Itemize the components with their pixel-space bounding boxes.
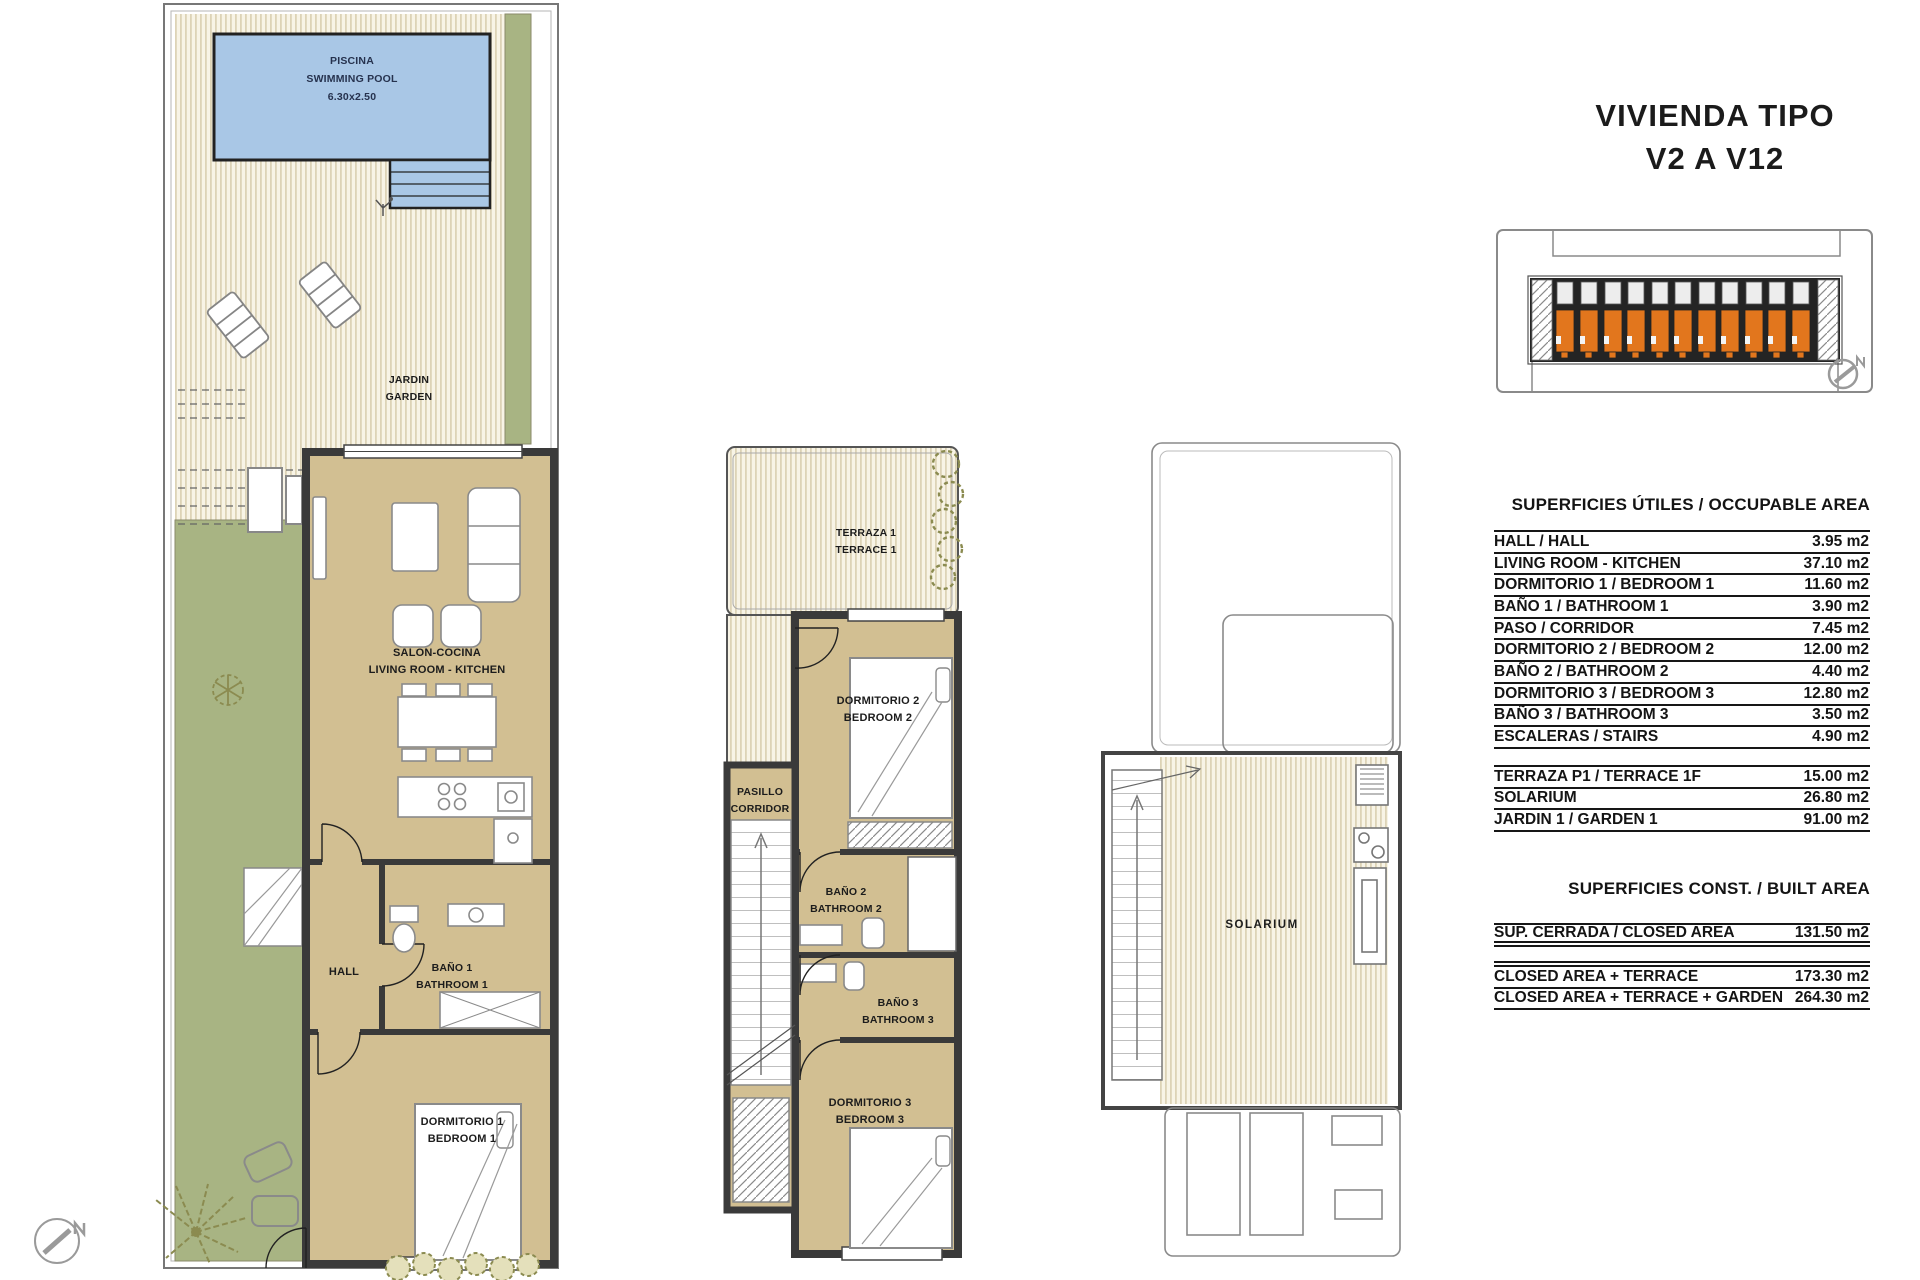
row-value: 12.80 m2 (1804, 685, 1871, 703)
bedroom3-label-es: DORMITORIO 3 (829, 1097, 912, 1109)
row-label: LIVING ROOM - KITCHEN (1494, 555, 1681, 573)
pool-label-es: PISCINA (330, 55, 374, 67)
row-value: 7.45 m2 (1812, 620, 1870, 638)
exterior-area-table: TERRAZA P1 / TERRACE 1F15.00 m2 SOLARIUM… (1494, 765, 1870, 832)
toilet (844, 962, 864, 990)
garden-label-en: GARDEN (386, 391, 433, 403)
armchair (441, 605, 481, 647)
table-row: ESCALERAS / STAIRS4.90 m2 (1494, 727, 1870, 749)
sheet-title: VIVIENDA TIPO V2 A V12 (1553, 94, 1877, 180)
occupable-area-table: HALL / HALL3.95 m2 LIVING ROOM - KITCHEN… (1494, 530, 1870, 749)
totals-table: CLOSED AREA + TERRACE173.30 m2 CLOSED AR… (1494, 961, 1870, 1010)
terrace-label-en: TERRACE 1 (835, 544, 896, 556)
sheet-title-line1: VIVIENDA TIPO (1553, 94, 1877, 137)
patio-table (286, 476, 302, 524)
bedroom2-label-en: BEDROOM 2 (844, 712, 912, 724)
bed (850, 658, 952, 818)
coffee-table (392, 503, 438, 571)
floorplan-sheet: PISCINA SWIMMING POOL 6.30x2.50 JARDIN G… (0, 0, 1920, 1280)
toilet (393, 924, 415, 952)
pool-dimensions: 6.30x2.50 (328, 91, 377, 103)
table-row: TERRAZA P1 / TERRACE 1F15.00 m2 (1494, 767, 1870, 789)
living-label-en: LIVING ROOM - KITCHEN (369, 664, 506, 676)
shower (908, 857, 956, 951)
sofa (468, 488, 520, 602)
row-label: CLOSED AREA + TERRACE + GARDEN (1494, 989, 1783, 1007)
table-row: BAÑO 1 / BATHROOM 13.90 m2 (1494, 597, 1870, 619)
washbasin (800, 964, 836, 982)
area-tables: SUPERFICIES ÚTILES / OCCUPABLE AREA HALL… (1494, 495, 1870, 1010)
bed (850, 1128, 952, 1248)
kitchen-unit (494, 819, 532, 863)
row-label: DORMITORIO 1 / BEDROOM 1 (1494, 576, 1714, 594)
row-value: 15.00 m2 (1804, 768, 1871, 786)
garden-label-es: JARDIN (389, 374, 429, 386)
bedroom3-label-en: BEDROOM 3 (836, 1114, 904, 1126)
dining-table (398, 697, 496, 747)
bedroom1-label-es: DORMITORIO 1 (421, 1116, 504, 1128)
row-value: 173.30 m2 (1795, 968, 1870, 986)
chair (436, 749, 460, 761)
row-value: 26.80 m2 (1804, 789, 1871, 807)
row-value: 4.90 m2 (1812, 728, 1870, 746)
bbq-unit (1356, 765, 1388, 805)
bath2-label-en: BATHROOM 2 (810, 903, 882, 915)
armchair (393, 605, 433, 647)
living-label-es: SALON-COCINA (393, 647, 481, 659)
staircase (727, 820, 795, 1085)
ground-floor-plan: PISCINA SWIMMING POOL 6.30x2.50 JARDIN G… (156, 4, 558, 1280)
bath3-label-en: BATHROOM 3 (862, 1014, 934, 1026)
corridor-label-en: CORRIDOR (731, 803, 790, 815)
row-value: 3.90 m2 (1812, 598, 1870, 616)
solarium-plan: SOLARIUM (1103, 443, 1400, 1256)
patio-table (248, 468, 282, 532)
table-row: DORMITORIO 2 / BEDROOM 212.00 m2 (1494, 640, 1870, 662)
pool-label-en: SWIMMING POOL (306, 73, 398, 85)
table-row: PASO / CORRIDOR7.45 m2 (1494, 619, 1870, 641)
row-value: 11.60 m2 (1804, 576, 1870, 594)
chair (402, 749, 426, 761)
row-value: 3.95 m2 (1812, 533, 1870, 551)
bath3-label-es: BAÑO 3 (878, 996, 919, 1009)
roof-outline (1165, 1108, 1400, 1256)
table-row: BAÑO 3 / BATHROOM 33.50 m2 (1494, 706, 1870, 728)
terrace-label-es: TERRAZA 1 (836, 527, 896, 539)
row-value: 131.50 m2 (1795, 924, 1870, 942)
table-row: CLOSED AREA + TERRACE + GARDEN264.30 m2 (1494, 989, 1870, 1011)
row-label: BAÑO 3 / BATHROOM 3 (1494, 706, 1669, 724)
terrace-outline (1223, 615, 1393, 753)
table-row: CLOSED AREA + TERRACE173.30 m2 (1494, 967, 1870, 989)
bedroom1-label-en: BEDROOM 1 (428, 1133, 496, 1145)
row-label: JARDIN 1 / GARDEN 1 (1494, 811, 1658, 829)
north-compass-icon (35, 1219, 84, 1263)
table-row: JARDIN 1 / GARDEN 191.00 m2 (1494, 810, 1870, 832)
row-value: 37.10 m2 (1804, 555, 1871, 573)
table-row: SOLARIUM26.80 m2 (1494, 789, 1870, 811)
chair (436, 684, 460, 696)
highlighted-units (1556, 282, 1810, 358)
built-area-heading: SUPERFICIES CONST. / BUILT AREA (1494, 879, 1870, 899)
north-compass-icon (1829, 357, 1864, 388)
row-label: CLOSED AREA + TERRACE (1494, 968, 1698, 986)
first-floor-plan: TERRAZA 1 TERRACE 1 PASILLO CORRIDOR DOR… (727, 447, 963, 1260)
table-row: HALL / HALL3.95 m2 (1494, 532, 1870, 554)
garden-hedge-strip (505, 14, 531, 444)
built-area-table: SUP. CERRADA / CLOSED AREA131.50 m2 (1494, 923, 1870, 947)
toilet-cistern (390, 906, 418, 922)
bath2-label-es: BAÑO 2 (826, 885, 867, 898)
kitchen-sink (498, 783, 524, 811)
tall-unit (1354, 868, 1386, 964)
table-row: BAÑO 2 / BATHROOM 24.40 m2 (1494, 662, 1870, 684)
occupable-area-heading: SUPERFICIES ÚTILES / OCCUPABLE AREA (1494, 495, 1870, 515)
wardrobe (848, 822, 952, 848)
branch-icon-dot (389, 197, 393, 201)
washbasin (800, 925, 842, 945)
table-row: LIVING ROOM - KITCHEN37.10 m2 (1494, 554, 1870, 576)
lower-floor-outline (1152, 443, 1400, 753)
row-value: 3.50 m2 (1812, 706, 1870, 724)
toilet (862, 918, 884, 948)
bedroom2-label-es: DORMITORIO 2 (837, 695, 920, 707)
row-value: 264.30 m2 (1795, 989, 1870, 1007)
row-value: 12.00 m2 (1804, 641, 1871, 659)
side-stair (244, 868, 302, 946)
chair (468, 684, 492, 696)
row-label: TERRAZA P1 / TERRACE 1F (1494, 768, 1701, 786)
table-row: SUP. CERRADA / CLOSED AREA131.50 m2 (1494, 923, 1870, 947)
row-label: SOLARIUM (1494, 789, 1577, 807)
row-label: BAÑO 2 / BATHROOM 2 (1494, 663, 1669, 681)
wardrobe (733, 1098, 789, 1202)
row-label: ESCALERAS / STAIRS (1494, 728, 1658, 746)
hall-label: HALL (329, 966, 359, 978)
bath1-label-en: BATHROOM 1 (416, 979, 488, 991)
row-label: HALL / HALL (1494, 533, 1589, 551)
row-value: 91.00 m2 (1804, 811, 1871, 829)
site-key-plan (1497, 230, 1872, 392)
row-label: PASO / CORRIDOR (1494, 620, 1634, 638)
table-row: DORMITORIO 3 / BEDROOM 312.80 m2 (1494, 684, 1870, 706)
row-label: BAÑO 1 / BATHROOM 1 (1494, 598, 1669, 616)
table-row: DORMITORIO 1 / BEDROOM 111.60 m2 (1494, 575, 1870, 597)
chair (402, 684, 426, 696)
row-label: DORMITORIO 3 / BEDROOM 3 (1494, 685, 1714, 703)
chair (468, 749, 492, 761)
solarium-label: SOLARIUM (1225, 919, 1298, 931)
sheet-title-line2: V2 A V12 (1553, 137, 1877, 180)
row-value: 4.40 m2 (1812, 663, 1870, 681)
window (848, 609, 944, 621)
row-label: SUP. CERRADA / CLOSED AREA (1494, 924, 1735, 942)
bath1-label-es: BAÑO 1 (432, 961, 473, 974)
sink-hob-unit (1354, 828, 1388, 862)
corridor-label-es: PASILLO (737, 786, 783, 798)
tv-unit (313, 497, 326, 579)
row-label: DORMITORIO 2 / BEDROOM 2 (1494, 641, 1714, 659)
